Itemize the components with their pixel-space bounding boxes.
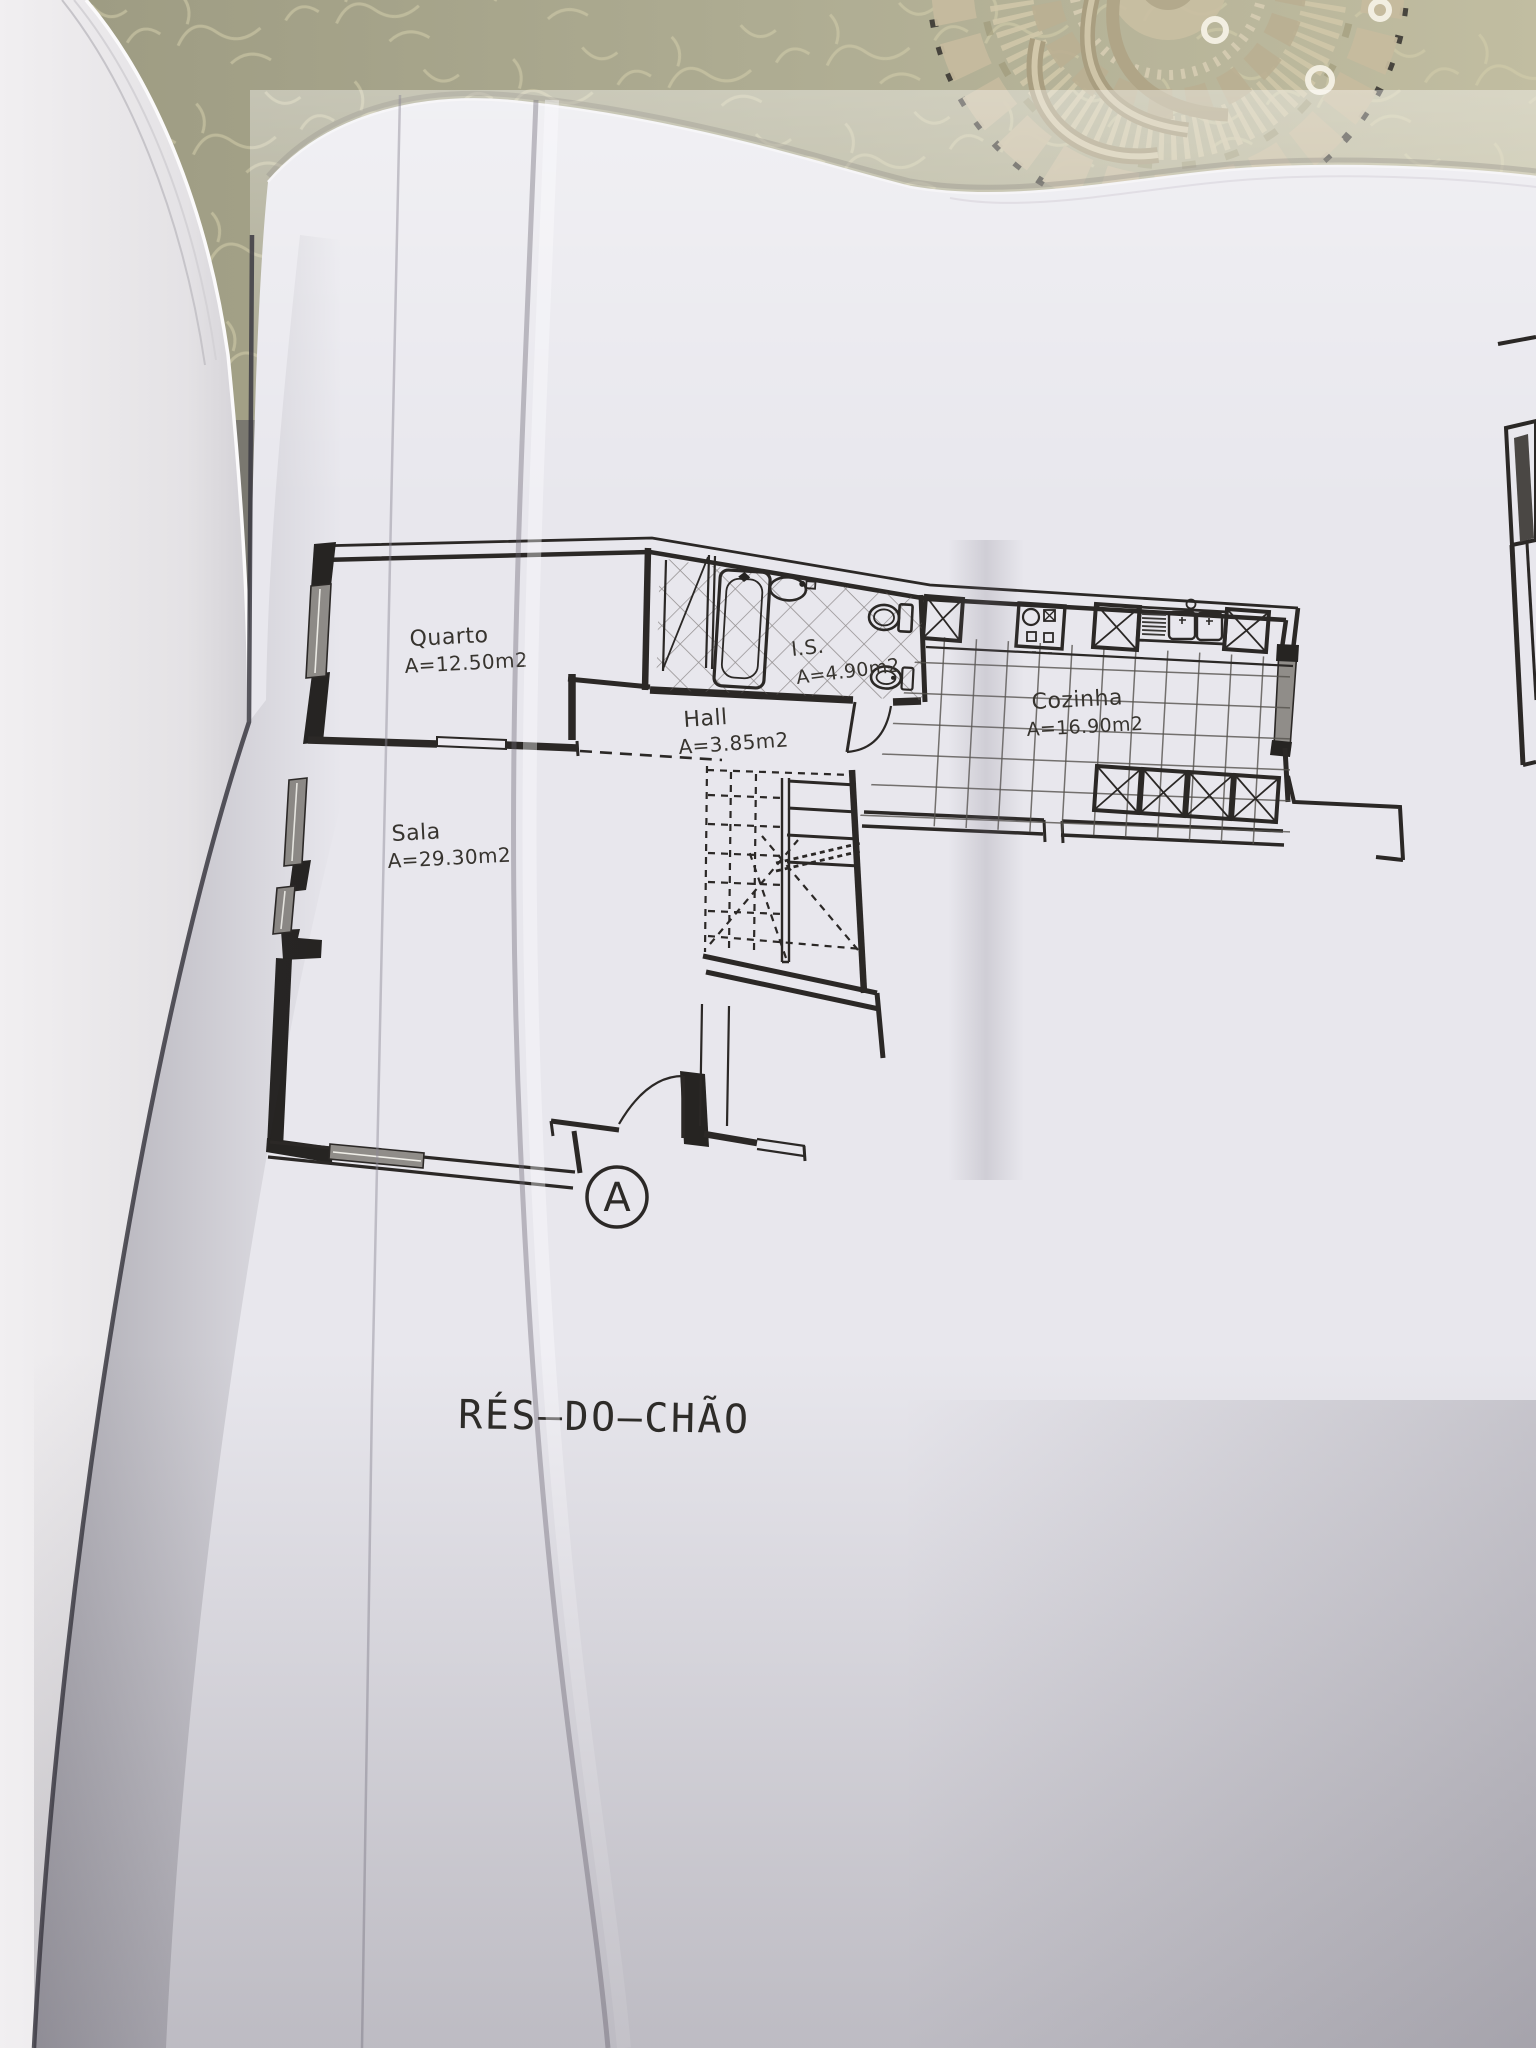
window-cap (1276, 644, 1299, 662)
scene: A Quarto A=12.50m2 Sala A=29.30m2 Hall A… (0, 0, 1536, 2048)
room-name: Hall (683, 705, 729, 733)
photo-of-floorplan-book: A Quarto A=12.50m2 Sala A=29.30m2 Hall A… (0, 0, 1536, 2048)
kitchen-right-wall-lower (1285, 748, 1288, 802)
room-name: I.S. (790, 634, 825, 661)
section-marker-letter: A (603, 1175, 631, 1221)
room-name: Quarto (409, 623, 489, 652)
room-name: Cozinha (1031, 685, 1124, 715)
window-cap (1270, 740, 1292, 757)
room-name: Sala (391, 819, 441, 847)
